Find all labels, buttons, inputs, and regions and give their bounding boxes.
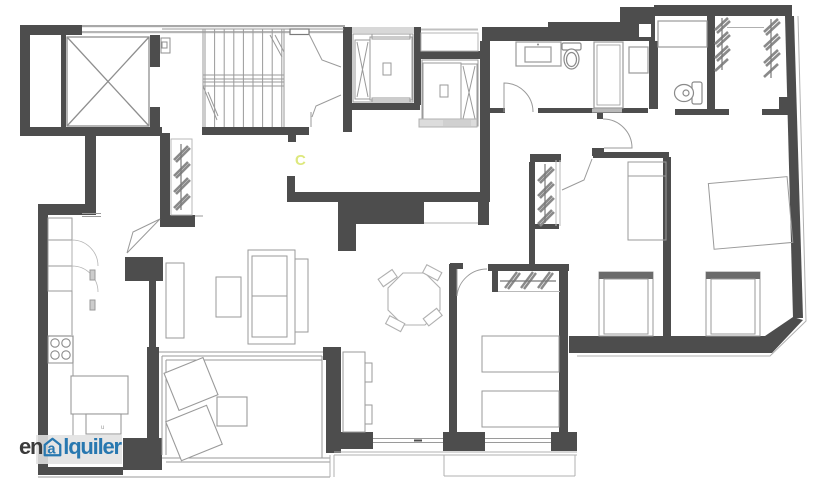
svg-text:C: C (295, 152, 306, 169)
svg-text:u: u (101, 425, 104, 431)
